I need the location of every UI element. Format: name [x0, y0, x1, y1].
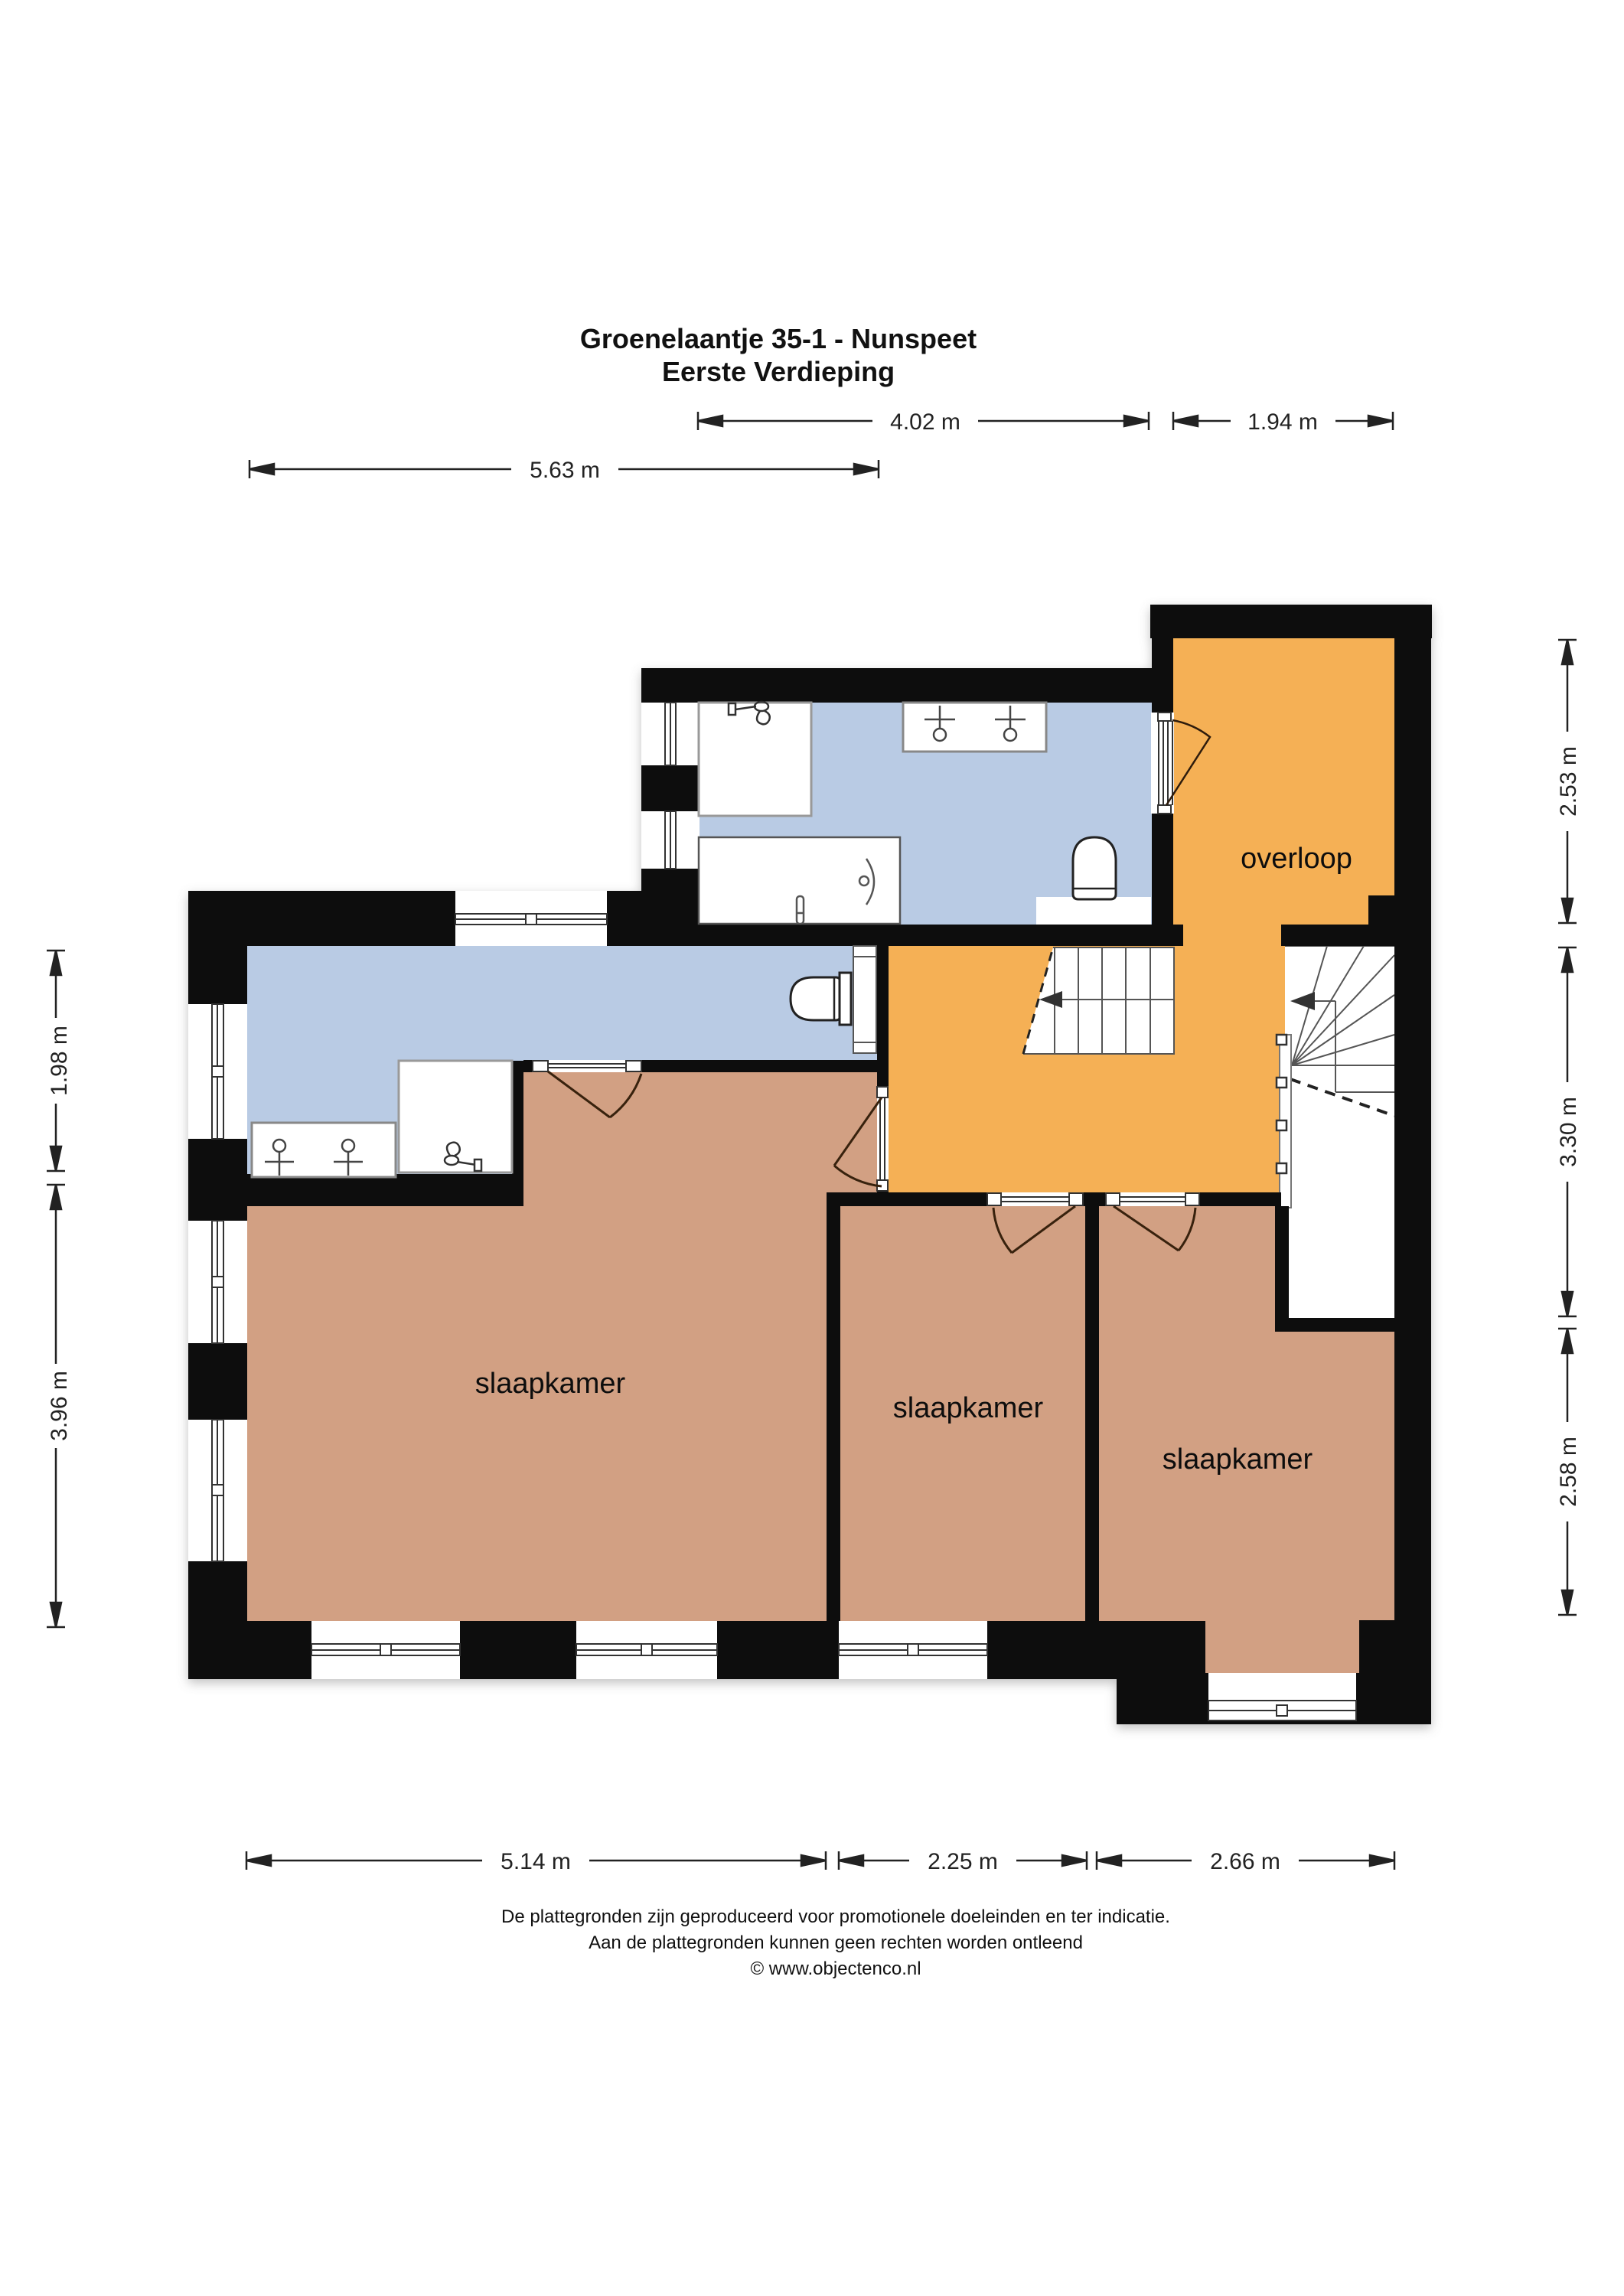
svg-text:2.66 m: 2.66 m — [1210, 1849, 1280, 1874]
svg-text:Eerste Verdieping: Eerste Verdieping — [662, 356, 895, 387]
svg-text:3.30 m: 3.30 m — [1556, 1097, 1581, 1167]
svg-text:slaapkamer: slaapkamer — [893, 1392, 1044, 1424]
svg-text:4.02 m: 4.02 m — [890, 409, 960, 435]
svg-text:2.58 m: 2.58 m — [1556, 1437, 1581, 1507]
svg-text:overloop: overloop — [1241, 843, 1352, 875]
svg-text:5.14 m: 5.14 m — [501, 1849, 571, 1874]
svg-text:1.94 m: 1.94 m — [1247, 409, 1318, 435]
svg-text:3.96 m: 3.96 m — [47, 1371, 72, 1441]
svg-text:5.63 m: 5.63 m — [530, 458, 600, 483]
svg-text:Aan de plattegronden kunnen ge: Aan de plattegronden kunnen geen rechten… — [589, 1932, 1083, 1953]
svg-text:De plattegronden zijn geproduc: De plattegronden zijn geproduceerd voor … — [501, 1906, 1170, 1927]
svg-text:© www.objectenco.nl: © www.objectenco.nl — [750, 1958, 921, 1979]
svg-text:1.98 m: 1.98 m — [47, 1026, 72, 1096]
svg-text:Groenelaantje 35-1 - Nunspeet: Groenelaantje 35-1 - Nunspeet — [580, 323, 977, 354]
svg-text:slaapkamer: slaapkamer — [1163, 1443, 1313, 1476]
svg-text:2.53 m: 2.53 m — [1556, 746, 1581, 817]
svg-text:slaapkamer: slaapkamer — [475, 1368, 626, 1400]
svg-text:2.25 m: 2.25 m — [928, 1849, 998, 1874]
